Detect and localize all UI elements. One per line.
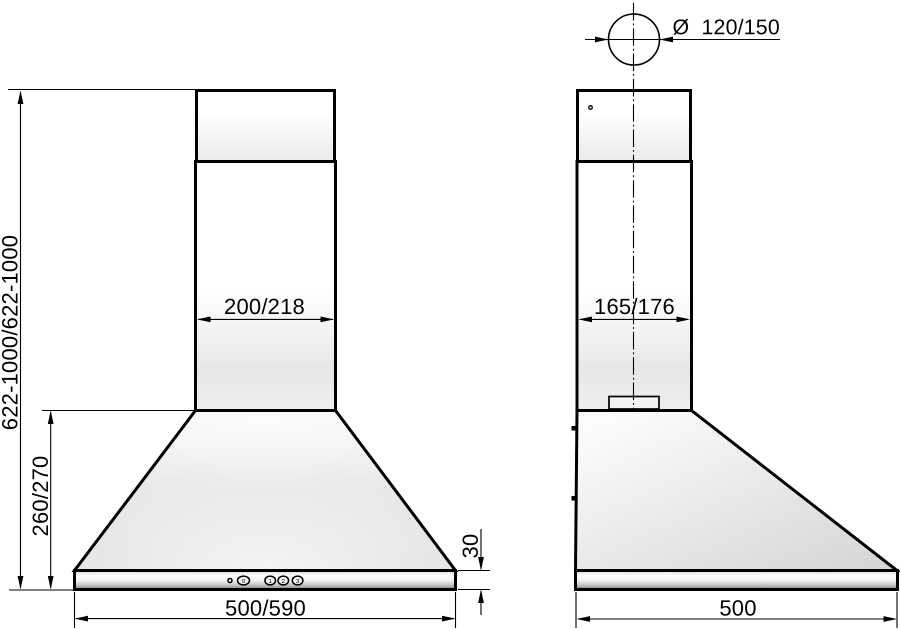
svg-text:Ø 120/150: Ø 120/150 xyxy=(672,15,779,39)
svg-text:500: 500 xyxy=(719,595,756,620)
svg-text:622-1000/622-1000: 622-1000/622-1000 xyxy=(0,235,23,430)
svg-text:260/270: 260/270 xyxy=(28,456,53,537)
svg-text:30: 30 xyxy=(458,534,483,559)
svg-text:500/590: 500/590 xyxy=(225,595,306,620)
svg-text:200/218: 200/218 xyxy=(224,294,305,319)
svg-text:165/176: 165/176 xyxy=(594,294,675,319)
